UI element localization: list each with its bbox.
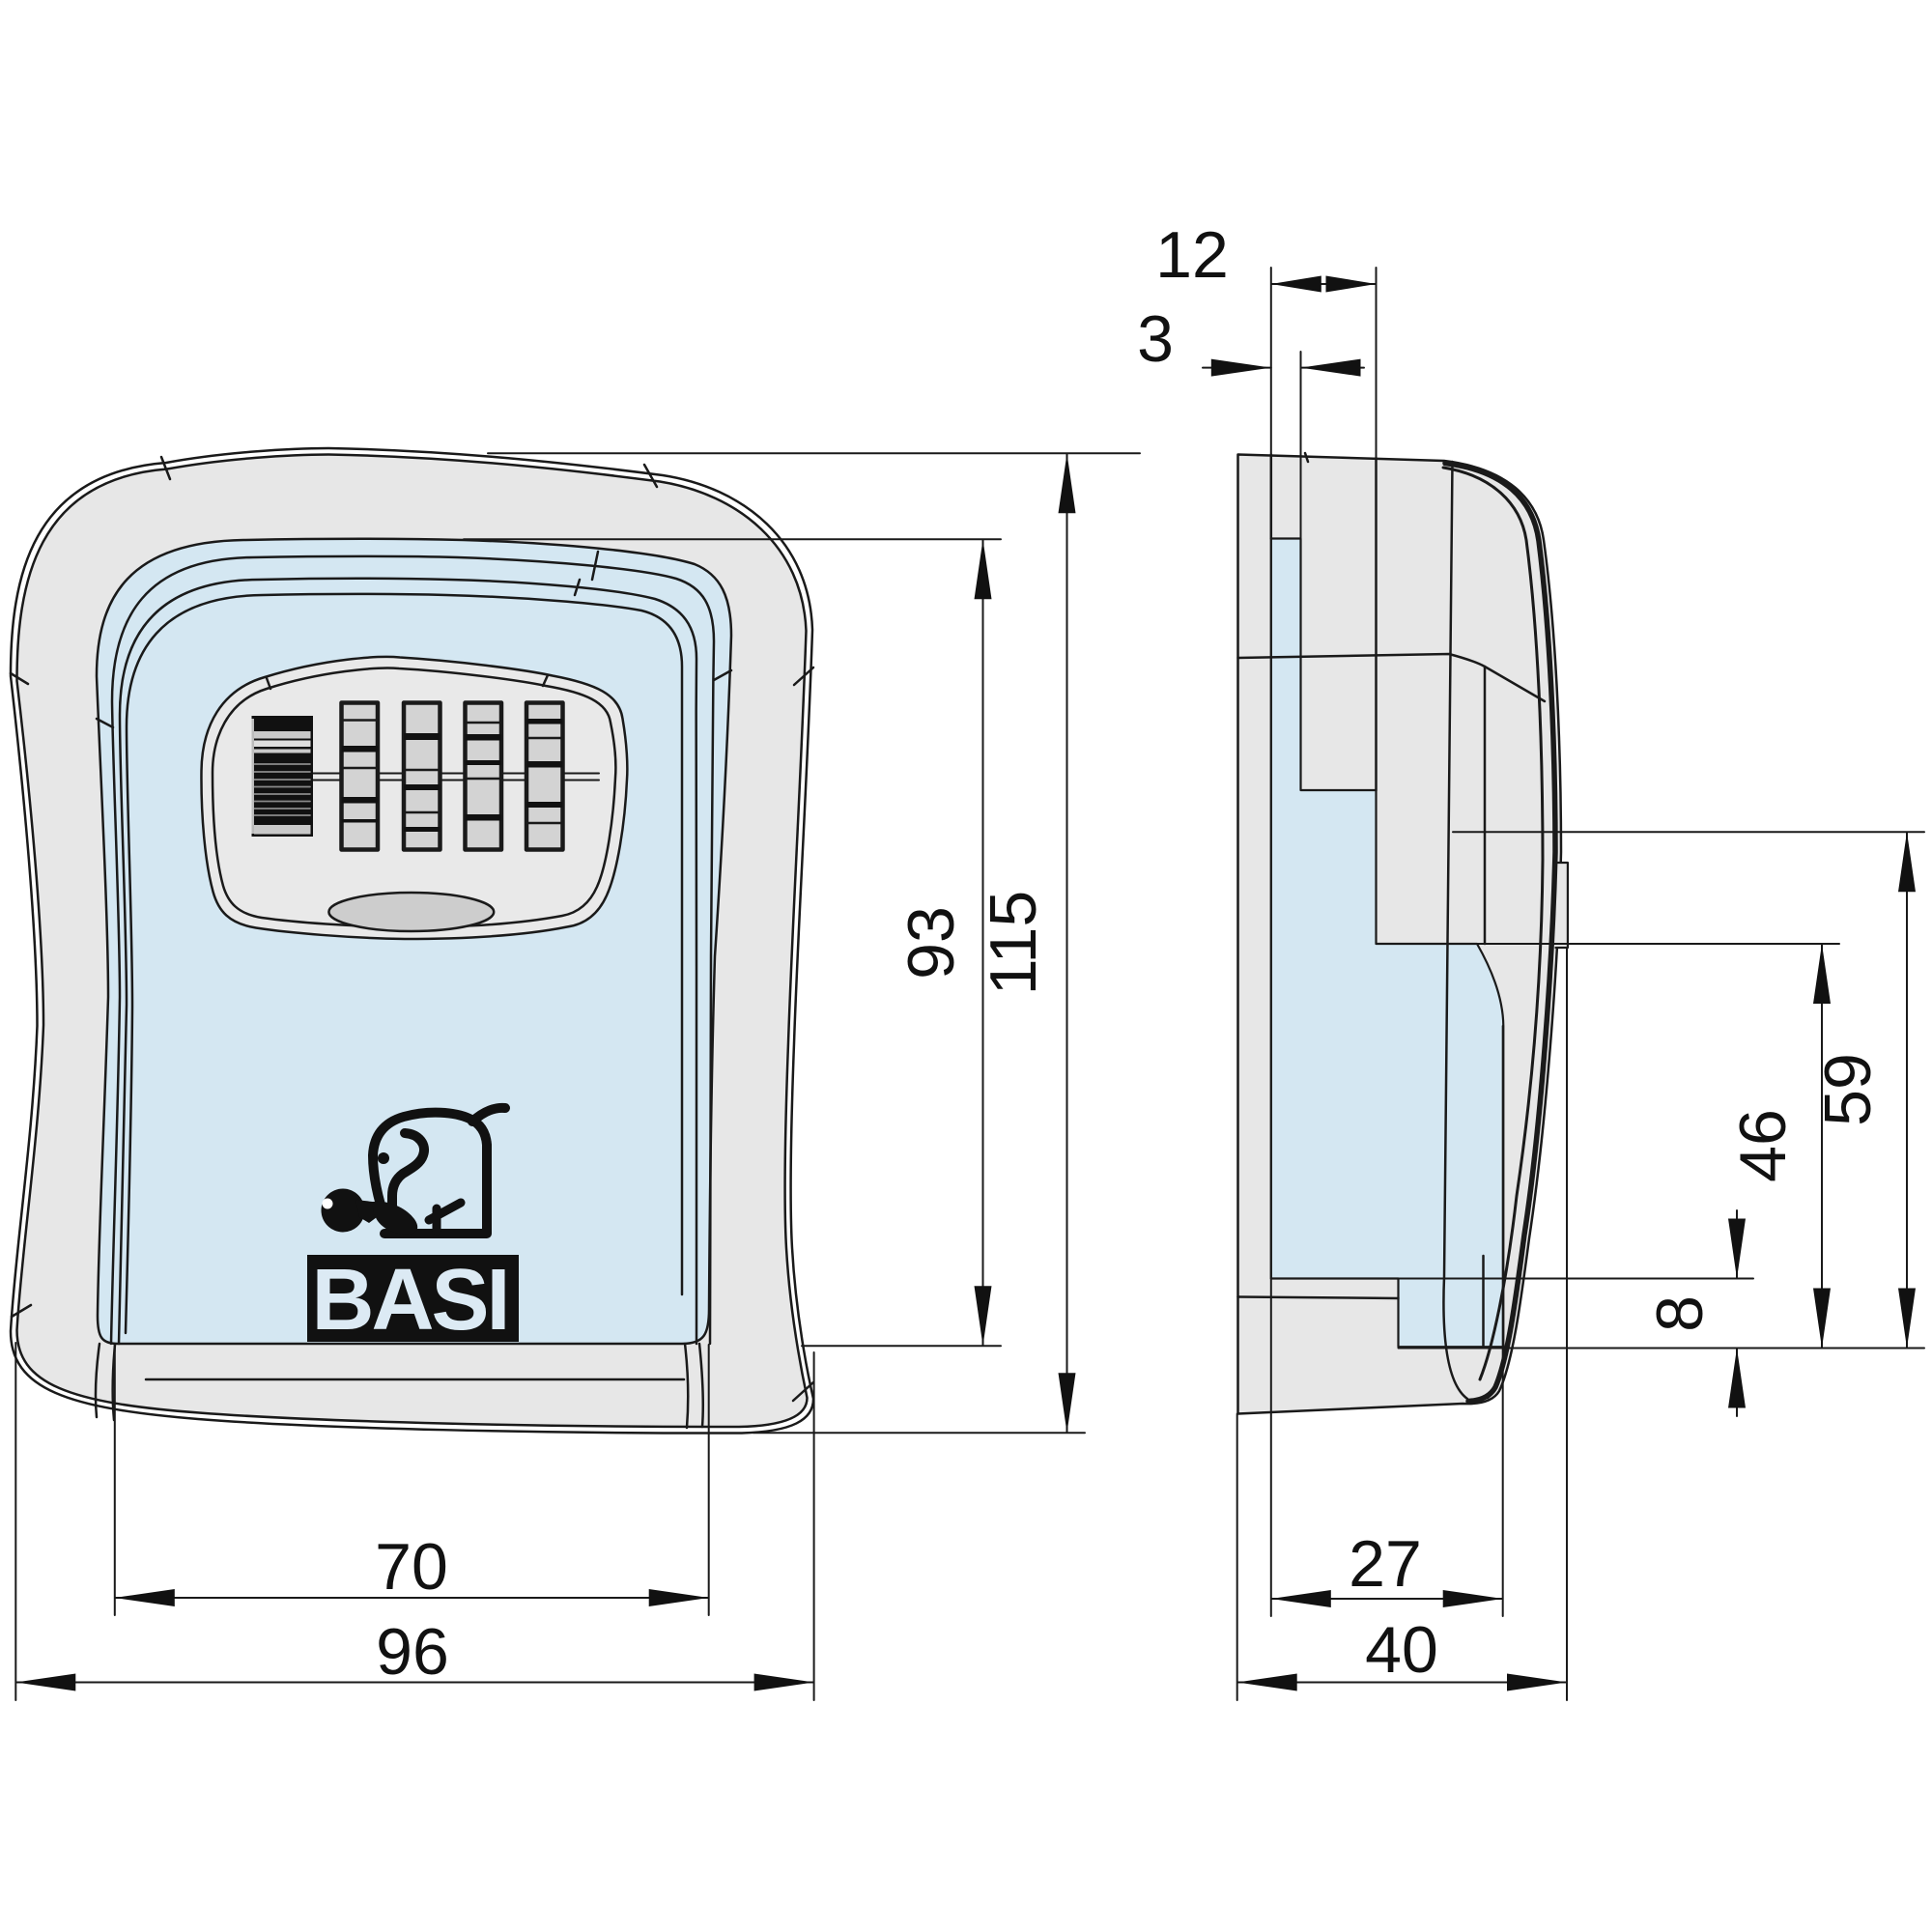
svg-text:46: 46 <box>1726 1109 1800 1182</box>
svg-text:27: 27 <box>1349 1527 1422 1601</box>
svg-text:3: 3 <box>1137 302 1174 376</box>
svg-text:40: 40 <box>1365 1613 1438 1687</box>
svg-text:70: 70 <box>375 1530 448 1604</box>
svg-text:115: 115 <box>977 891 1050 995</box>
svg-text:96: 96 <box>376 1615 449 1689</box>
svg-text:8: 8 <box>1643 1295 1717 1332</box>
svg-text:BASI: BASI <box>311 1252 507 1349</box>
svg-text:93: 93 <box>895 906 968 980</box>
svg-text:12: 12 <box>1155 218 1229 292</box>
